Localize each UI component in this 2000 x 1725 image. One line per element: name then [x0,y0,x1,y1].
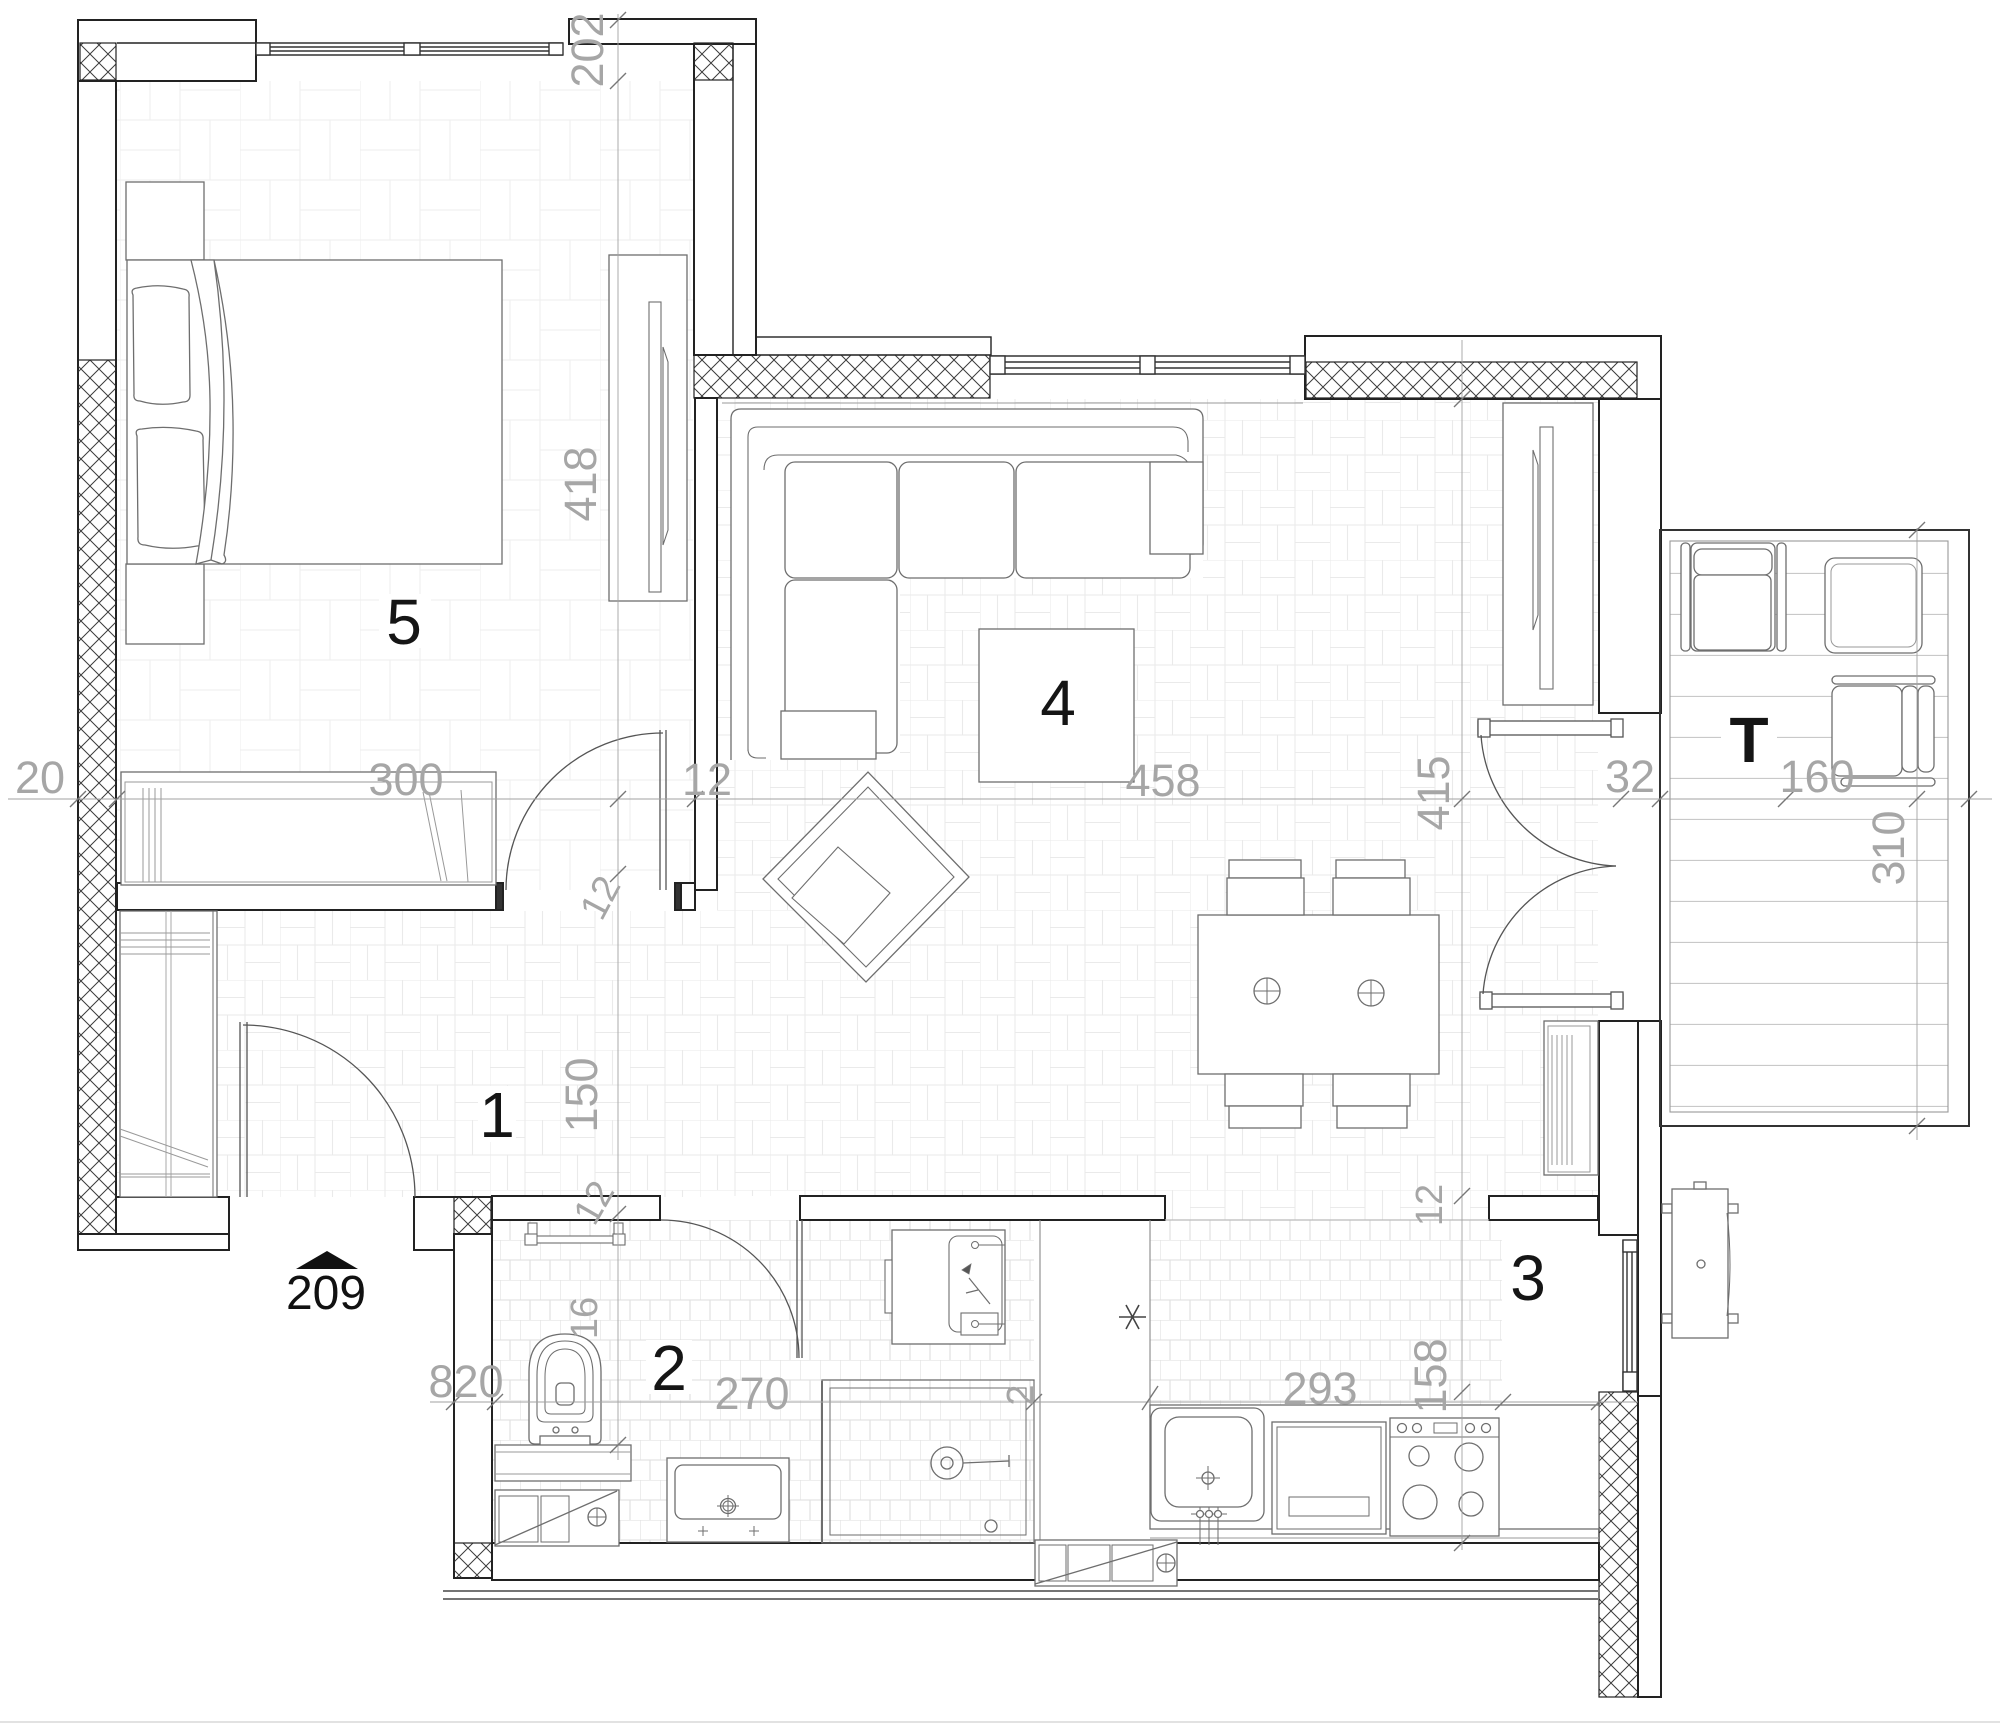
svg-text:270: 270 [714,1368,789,1419]
svg-text:12: 12 [682,754,732,805]
svg-text:2: 2 [1000,1384,1042,1405]
svg-text:2: 2 [651,1332,687,1404]
svg-text:20: 20 [15,752,65,803]
svg-text:158: 158 [1405,1338,1456,1413]
svg-text:820: 820 [428,1356,503,1407]
svg-text:3: 3 [1510,1242,1546,1314]
svg-text:5: 5 [386,586,422,658]
svg-text:32: 32 [1605,751,1655,802]
svg-text:4: 4 [1040,667,1076,739]
svg-text:209: 209 [286,1267,366,1320]
svg-text:16: 16 [564,1297,606,1339]
svg-text:458: 458 [1125,755,1200,806]
svg-text:300: 300 [368,754,443,805]
svg-text:T: T [1729,704,1768,776]
svg-text:418: 418 [555,446,606,521]
svg-text:12: 12 [1409,1184,1451,1226]
svg-text:293: 293 [1282,1363,1357,1414]
svg-text:202: 202 [562,12,613,87]
svg-text:415: 415 [1408,755,1459,830]
svg-text:160: 160 [1779,751,1854,802]
svg-text:310: 310 [1863,810,1914,885]
svg-text:150: 150 [556,1057,607,1132]
svg-text:1: 1 [479,1079,515,1151]
